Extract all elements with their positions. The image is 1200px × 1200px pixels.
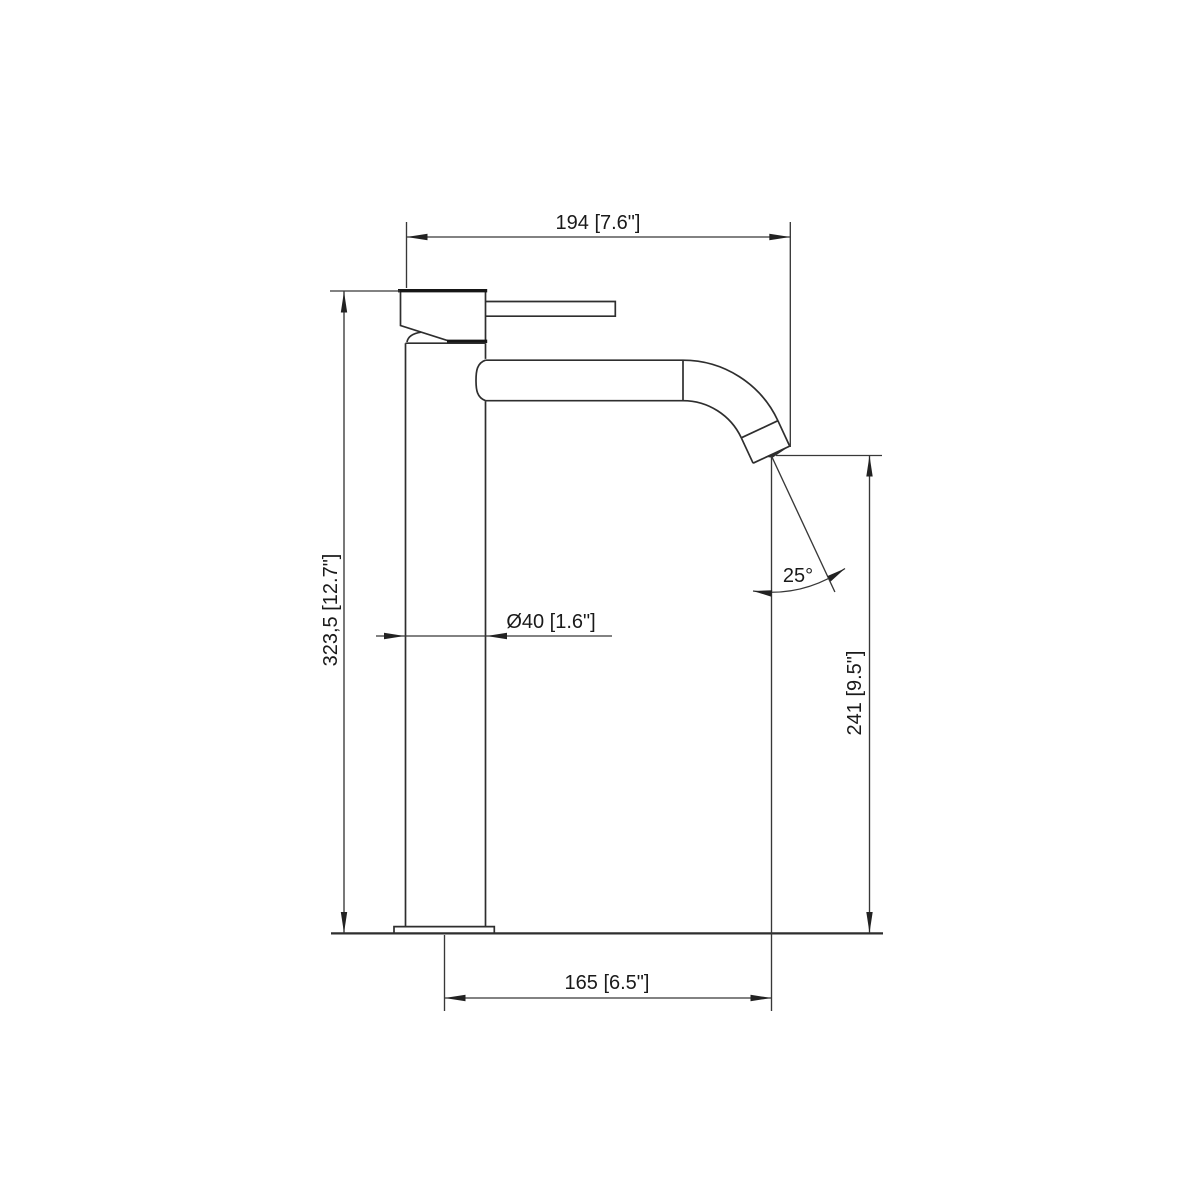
dim-spout-reach: 165 [6.5"] [445,935,772,1011]
dim-spout-angle-label: 25° [783,565,813,587]
dim-overall-height-label: 323,5 [12.7"] [320,554,342,667]
mixer-head [398,291,487,343]
drawing-canvas: 194 [7.6"] 323,5 [12.7"] Ø40 [1.6"] 25° … [0,0,1200,1200]
dim-top-width: 194 [7.6"] [407,212,791,447]
handle-pivot-arc [407,332,421,342]
dim-overall-height: 323,5 [12.7"] [320,291,400,933]
dim-body-diameter-label: Ø40 [1.6"] [506,611,595,633]
dim-outlet-height: 241 [9.5"] [776,456,882,934]
spout [476,360,778,438]
dim-body-diameter: Ø40 [1.6"] [376,611,612,639]
dim-spout-reach-label: 165 [6.5"] [565,972,650,994]
dim-spout-angle: 25° [753,456,845,1011]
aerator-cap [741,421,789,464]
dim-top-width-label: 194 [7.6"] [556,212,641,234]
spout-end-cap [476,360,486,401]
handle-lever [486,302,616,317]
dim-outlet-height-label: 241 [9.5"] [844,651,866,736]
faucet-technical-drawing: 194 [7.6"] 323,5 [12.7"] Ø40 [1.6"] 25° … [0,0,1200,1200]
bend-outer-curve [683,360,778,421]
base-flange [394,927,494,933]
bend-inner-curve [683,401,741,438]
body-column [406,343,486,926]
